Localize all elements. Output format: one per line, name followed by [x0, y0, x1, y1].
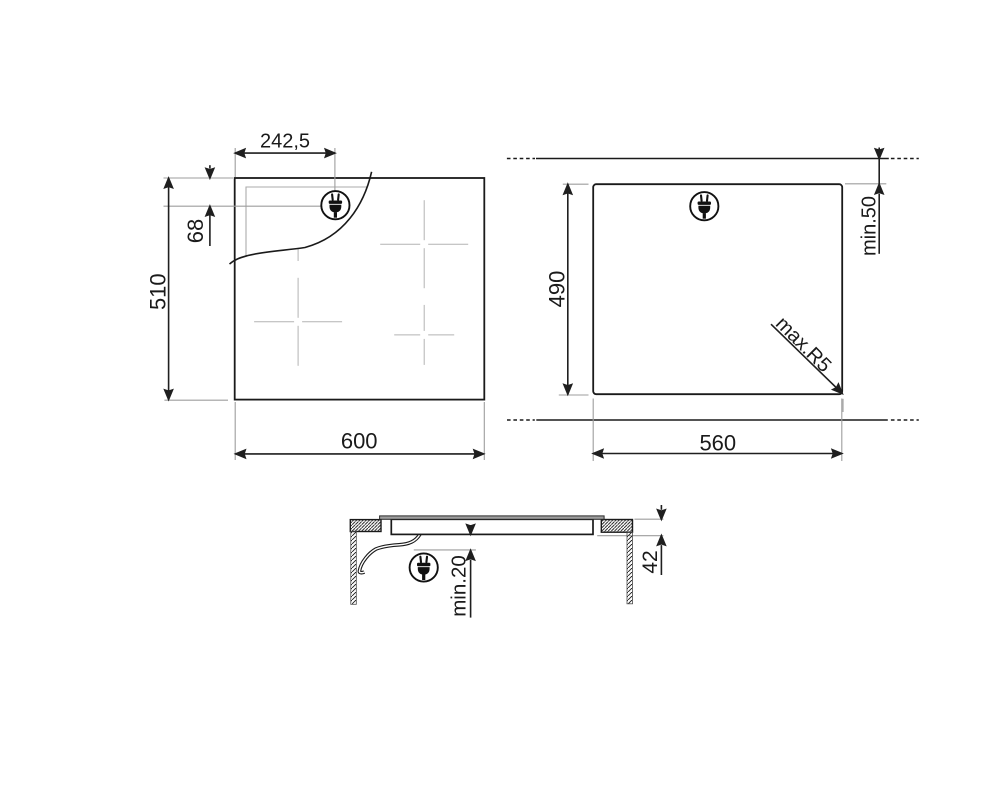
svg-text:242,5: 242,5 [260, 130, 310, 152]
svg-text:510: 510 [145, 273, 170, 310]
svg-text:560: 560 [699, 430, 736, 455]
svg-text:min.50: min.50 [859, 196, 881, 256]
svg-text:min.20: min.20 [448, 555, 471, 617]
svg-text:42: 42 [639, 550, 662, 573]
svg-text:68: 68 [183, 219, 208, 243]
svg-text:600: 600 [341, 429, 378, 454]
svg-text:490: 490 [545, 271, 570, 308]
